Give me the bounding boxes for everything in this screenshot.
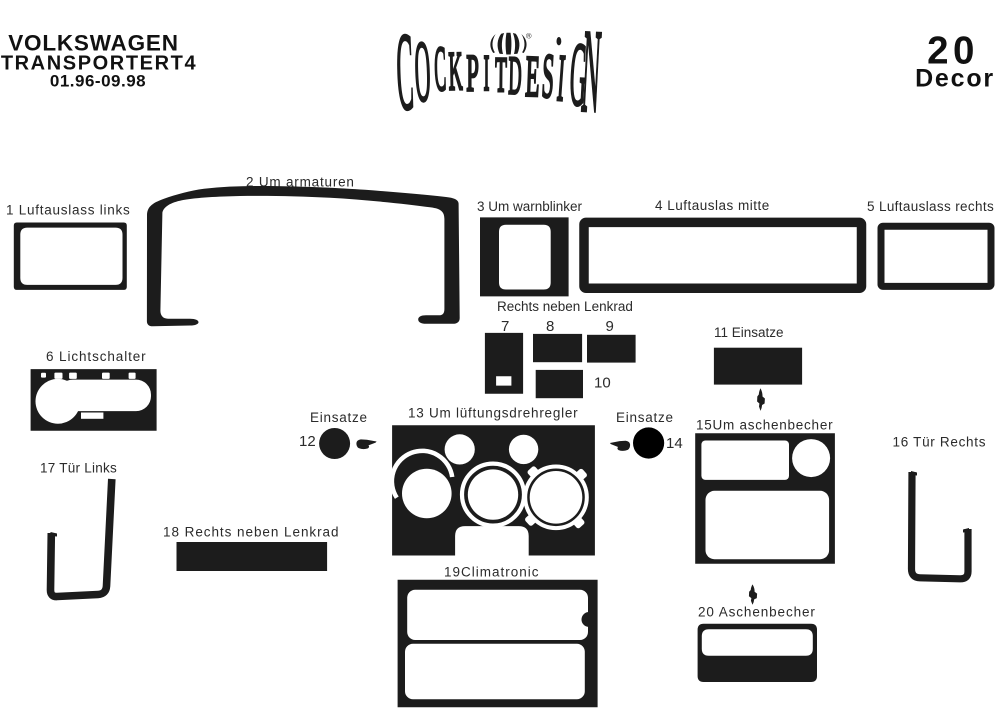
svg-text:K: K bbox=[448, 40, 463, 102]
svg-text:4 Luftauslas mitte: 4 Luftauslas mitte bbox=[655, 198, 770, 213]
svg-text:16 Tür Rechts: 16 Tür Rechts bbox=[893, 435, 987, 450]
svg-text:7: 7 bbox=[501, 318, 509, 335]
svg-text:Einsatze: Einsatze bbox=[616, 410, 674, 425]
svg-text:10: 10 bbox=[594, 375, 611, 392]
svg-text:5 Luftauslass rechts: 5 Luftauslass rechts bbox=[867, 199, 994, 214]
svg-text:19Climatronic: 19Climatronic bbox=[444, 565, 540, 580]
svg-text:E: E bbox=[524, 43, 540, 109]
svg-text:20 Aschenbecher: 20 Aschenbecher bbox=[698, 605, 816, 620]
svg-text:Rechts neben Lenkrad: Rechts neben Lenkrad bbox=[497, 299, 633, 314]
svg-text:11 Einsatze: 11 Einsatze bbox=[714, 325, 784, 340]
svg-text:17 Tür Links: 17 Tür Links bbox=[40, 461, 117, 476]
svg-text:D: D bbox=[508, 45, 522, 106]
svg-text:I: I bbox=[484, 46, 490, 102]
svg-text:Decor: Decor bbox=[915, 65, 995, 93]
svg-text:12: 12 bbox=[299, 433, 316, 450]
svg-text:8: 8 bbox=[546, 318, 554, 335]
svg-text:®: ® bbox=[526, 32, 532, 41]
svg-text:18 Rechts neben Lenkrad: 18 Rechts neben Lenkrad bbox=[163, 525, 339, 540]
svg-text:9: 9 bbox=[606, 318, 614, 335]
svg-text:14: 14 bbox=[666, 435, 683, 452]
svg-text:T: T bbox=[495, 49, 507, 103]
svg-text:01.96-09.98: 01.96-09.98 bbox=[50, 72, 146, 91]
svg-text:P: P bbox=[466, 44, 479, 103]
svg-text:1 Luftauslass links: 1 Luftauslass links bbox=[6, 203, 131, 218]
svg-text:6 Lichtschalter: 6 Lichtschalter bbox=[46, 349, 147, 364]
svg-text:13 Um lüftungsdrehregler: 13 Um lüftungsdrehregler bbox=[408, 406, 578, 421]
svg-text:C: C bbox=[433, 34, 447, 105]
svg-text:3 Um warnblinker: 3 Um warnblinker bbox=[477, 199, 583, 214]
svg-text:Einsatze: Einsatze bbox=[310, 410, 368, 425]
svg-text:15Um aschenbecher: 15Um aschenbecher bbox=[696, 418, 833, 433]
